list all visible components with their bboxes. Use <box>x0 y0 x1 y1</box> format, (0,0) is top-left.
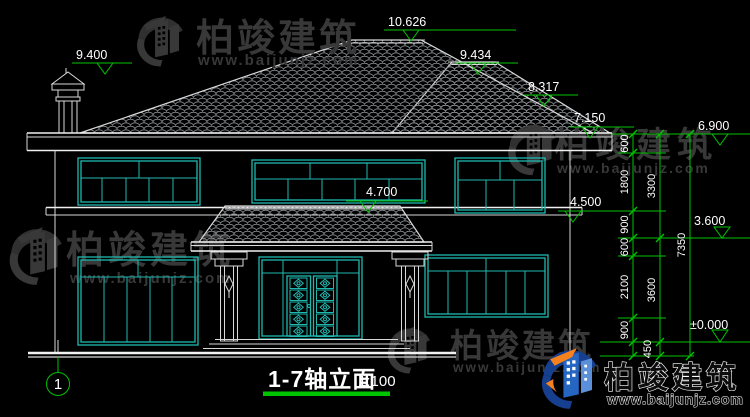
elevation-value: 4.700 <box>366 185 397 199</box>
watermark-url-text: www.baijunjz.com <box>197 52 359 69</box>
elevation-ground-floor: ±0.000 <box>690 318 728 342</box>
elevation-value: 7.150 <box>574 111 605 125</box>
elevation-value: 6.900 <box>698 119 729 133</box>
window-2f-middle <box>252 160 425 203</box>
elevation-value: ±0.000 <box>690 318 728 332</box>
elevation-second-floor: 4.500 <box>565 195 601 222</box>
brand-name: 柏竣建筑 <box>604 361 740 395</box>
dim-label: 900 <box>619 215 631 233</box>
elevation-drawing: 柏竣建筑 www.baijunjz.com 柏竣建筑 www.baijunjz.… <box>0 0 750 417</box>
elevation-value: 9.400 <box>76 48 107 62</box>
dim-label: 450 <box>642 340 654 358</box>
watermark-right-middle: 柏竣建筑 www.baijunjz.com <box>508 123 718 176</box>
window-2f-right <box>455 158 545 213</box>
dim-label: 900 <box>619 321 631 339</box>
entrance-door <box>259 257 362 339</box>
elevation-value: 10.626 <box>388 15 426 29</box>
window-1f-right <box>425 255 548 317</box>
elevation-left-roof: 9.400 <box>72 48 132 74</box>
elevation-value: 4.500 <box>570 195 601 209</box>
axis-number: 1 <box>54 376 62 393</box>
dim-label: 3600 <box>646 278 658 302</box>
elevation-main-ridge: 10.626 <box>384 15 516 41</box>
porch-columns <box>211 252 428 341</box>
dim-label: 600 <box>619 134 631 152</box>
drawing-scale: 1:100 <box>358 373 396 390</box>
dim-label: 600 <box>619 238 631 256</box>
axis-bubble-1: 1 <box>47 340 70 396</box>
elevation-value: 3.600 <box>694 214 725 228</box>
window-2f-left <box>78 158 200 205</box>
elevation-window-sill: 3.600 <box>694 214 730 238</box>
watermark-top-center: 柏竣建筑 www.baijunjz.com <box>137 16 360 69</box>
elevation-value: 8.317 <box>528 80 559 94</box>
dim-label: 2100 <box>619 275 631 299</box>
dim-label: 3300 <box>646 174 658 198</box>
chimney <box>52 68 84 133</box>
cad-elevation-screenshot: 柏竣建筑 www.baijunjz.com 柏竣建筑 www.baijunjz.… <box>0 0 750 417</box>
elevation-value: 9.434 <box>460 48 491 62</box>
drawing-title-block: 1-7轴立面 1:100 <box>263 366 396 396</box>
brand-url: www.baijunjz.com <box>606 391 744 407</box>
dim-label: 7350 <box>676 233 688 257</box>
dim-label: 1800 <box>619 170 631 194</box>
title-underline <box>263 392 390 397</box>
